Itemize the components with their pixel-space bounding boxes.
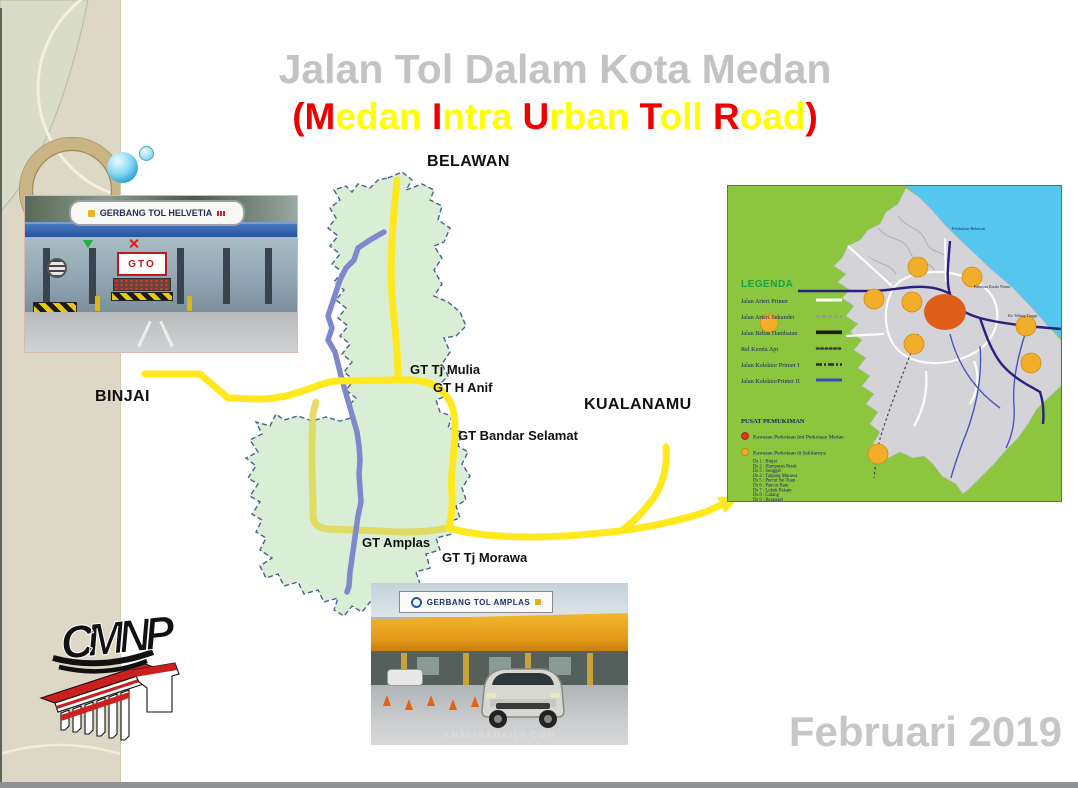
legend-item-arteri-primer: Jalan Arteri Primer [741,298,788,305]
booth-pillar [223,248,230,304]
logo-letters: CMNP [58,605,178,669]
medan-core-area [924,294,966,330]
pusat-pemukiman-title: PUSAT PEMUKIMAN [741,418,805,425]
toll-operator-icon [88,210,95,217]
booth-pillar [177,248,184,304]
swatch-white-line [816,299,842,302]
label-bandara-kuala-namu: Bandara Kuala Namu [974,284,1011,289]
label-gt-h-anif: GT H Anif [433,380,492,395]
label-gt-tj-morawa: GT Tj Morawa [442,550,527,565]
slide-date: Februari 2019 [789,708,1062,756]
core-area-icon [742,433,749,440]
helvetia-gate-sign: GERBANG TOL HELVETIA [69,200,245,226]
label-ke-tebing-tinggi: Ke Tebing Tinggi [1008,313,1038,318]
tariff-board [113,278,171,291]
legend-item-kolektor-1: Jalan Kolektor Primer I [741,362,799,369]
toll-road-kualanamu [621,447,666,531]
label-gt-tj-mulia: GT Tj Mulia [410,362,480,377]
label-gt-amplas: GT Amplas [362,535,430,550]
hk-logo-icon [217,211,226,216]
legend-item-arteri-sekunder: Jalan Arteri Sekunder [741,314,795,321]
left-edge-line [0,8,2,782]
traffic-cone-icon [449,699,457,710]
cmnp-logo: CMNP [35,604,185,746]
legend-item-kolektor-2: Jalan KolektorPrimer II [741,378,800,385]
roundel-sign [47,258,67,278]
pusat-core-label: Kawasan Perkotaan Inti Perkotaan Medan [753,435,844,441]
traffic-cone-icon [427,695,435,706]
pusat-surround-label: Kawasan Perkotaan di Sekitarnya [753,451,826,457]
plan-map-svg: Pelabuhan Belawan Bandara Kuala Namu Ke … [728,186,1061,501]
slide-title: Jalan Tol Dalam Kota Medan [80,46,1030,93]
traffic-cone-icon [383,695,391,706]
quarter-circle-tint [0,0,88,212]
label-gt-bandar-selamat: GT Bandar Selamat [458,428,578,443]
photo-gerbang-tol-amplas: GERBANG TOL AMPLAS ANALISADAILY.COM [371,583,628,745]
gto-sign: GTO [117,252,167,276]
silver-suv [474,659,572,731]
slide: Jalan Tol Dalam Kota Medan (Medan Intra … [0,0,1078,788]
legend-item-rel-kereta: Rel Kereta Api [741,346,778,353]
logo-viaduct [41,663,179,740]
helvetia-sign-text: GERBANG TOL HELVETIA [100,208,213,218]
hazard-stripe-bar [111,292,173,301]
legend-item-bebas-hambatan: Jalan Bebas Hambatan [741,330,797,337]
red-x-signal-icon [129,238,139,248]
yellow-post [187,296,192,311]
label-binjai: BINJAI [95,388,150,406]
bottom-gray-bar [0,782,1078,788]
background-car [387,669,423,686]
booth-pillar [265,248,272,304]
photo-watermark: ANALISADAILY.COM [371,730,628,740]
surround-area-icon [742,449,749,456]
road-surface [25,312,297,352]
yellow-canopy [371,613,628,654]
label-belawan: BELAWAN [427,153,510,171]
gate-logo-icon [535,599,541,605]
yellow-post [95,296,100,311]
swatch-blue-line [816,379,842,382]
traffic-cone-icon [405,699,413,710]
swatch-black-line [816,331,842,335]
mebidangro-plan-map: Pelabuhan Belawan Bandara Kuala Namu Ke … [727,185,1062,502]
label-kualanamu: KUALANAMU [584,396,692,414]
canopy-pillar [463,653,469,685]
jasamarga-icon [411,597,422,608]
booth-pillar [43,248,50,304]
label-pelabuhan-belawan: Pelabuhan Belawan [952,226,986,231]
green-arrow-signal-icon [83,240,93,248]
amplas-gate-sign: GERBANG TOL AMPLAS [399,591,553,613]
slide-subtitle: (Medan Intra Urban Toll Road) [80,96,1030,138]
canopy-pillar [587,653,593,685]
toll-road-south [449,528,620,537]
amplas-sign-text: GERBANG TOL AMPLAS [427,598,531,607]
photo-gerbang-tol-helvetia: GERBANG TOL HELVETIA GTO [25,196,297,352]
legenda-title: LEGENDA [741,279,793,290]
ds-item-9: Ds 9 : Berastagi [753,498,784,501]
